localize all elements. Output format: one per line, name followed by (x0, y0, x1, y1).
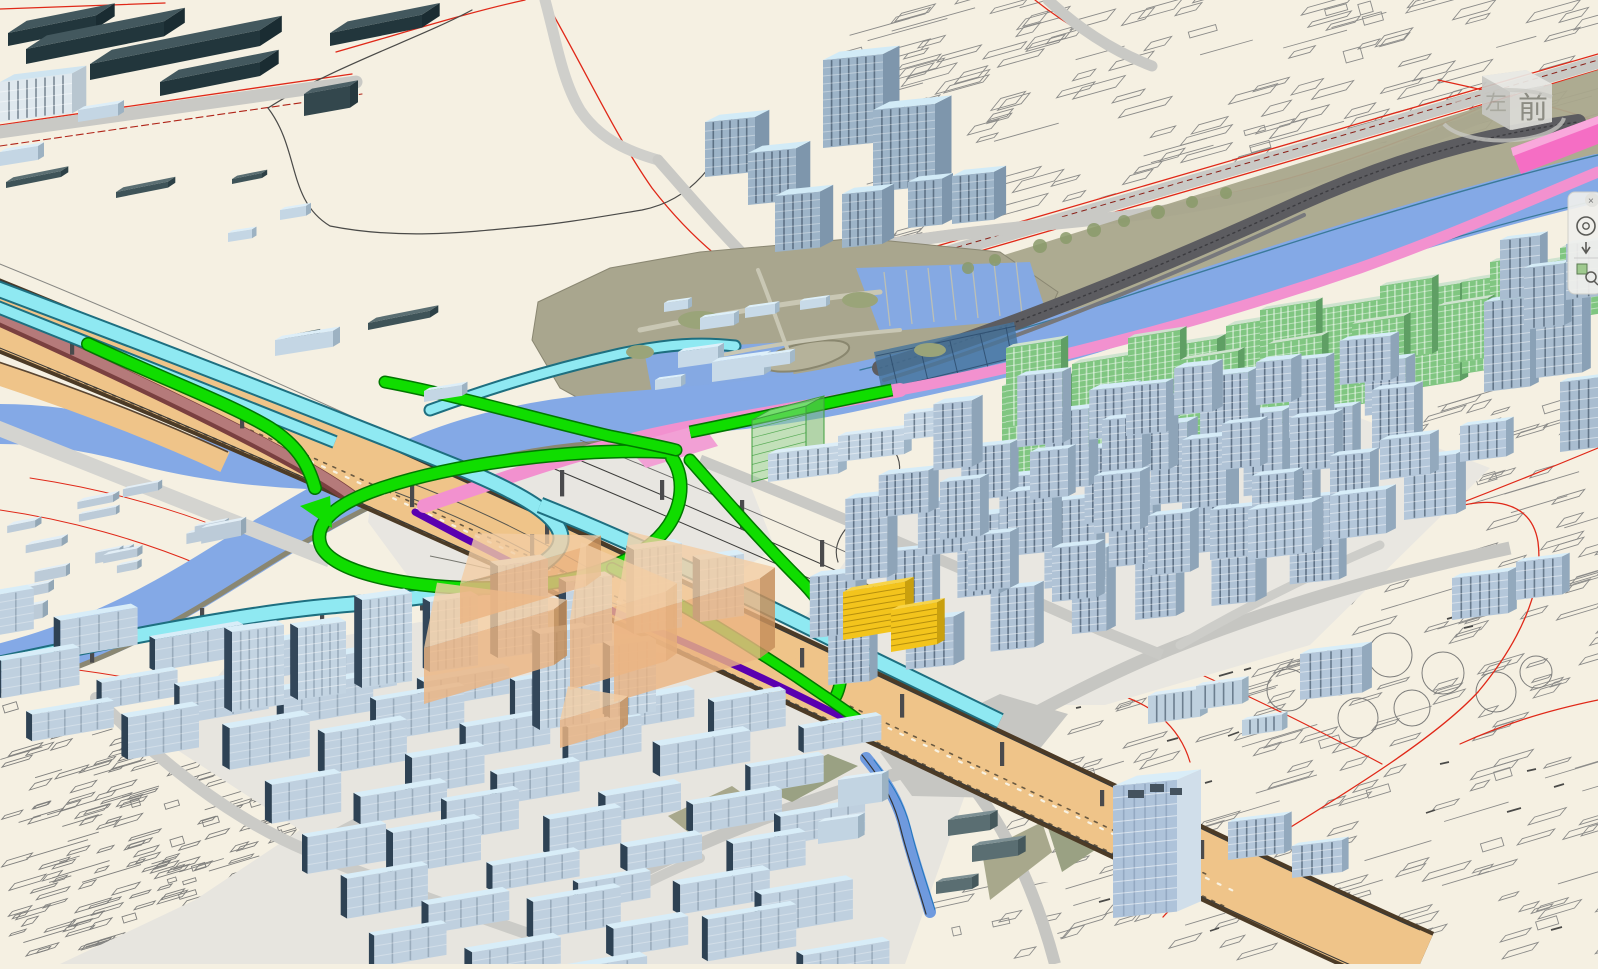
svg-text:×: × (1588, 196, 1594, 207)
svg-text:左: 左 (1485, 90, 1507, 115)
svg-text:前: 前 (1518, 92, 1548, 125)
